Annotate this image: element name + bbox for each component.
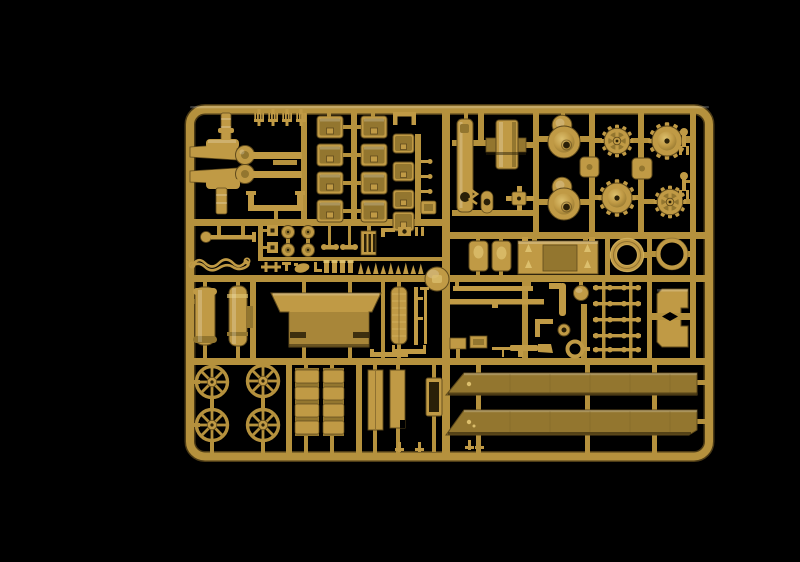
part-group-hatch-plate xyxy=(518,237,598,274)
sprue-illustration xyxy=(40,16,800,546)
part-group-tall-mount-plate xyxy=(457,111,473,212)
sprue-photo xyxy=(40,16,800,546)
